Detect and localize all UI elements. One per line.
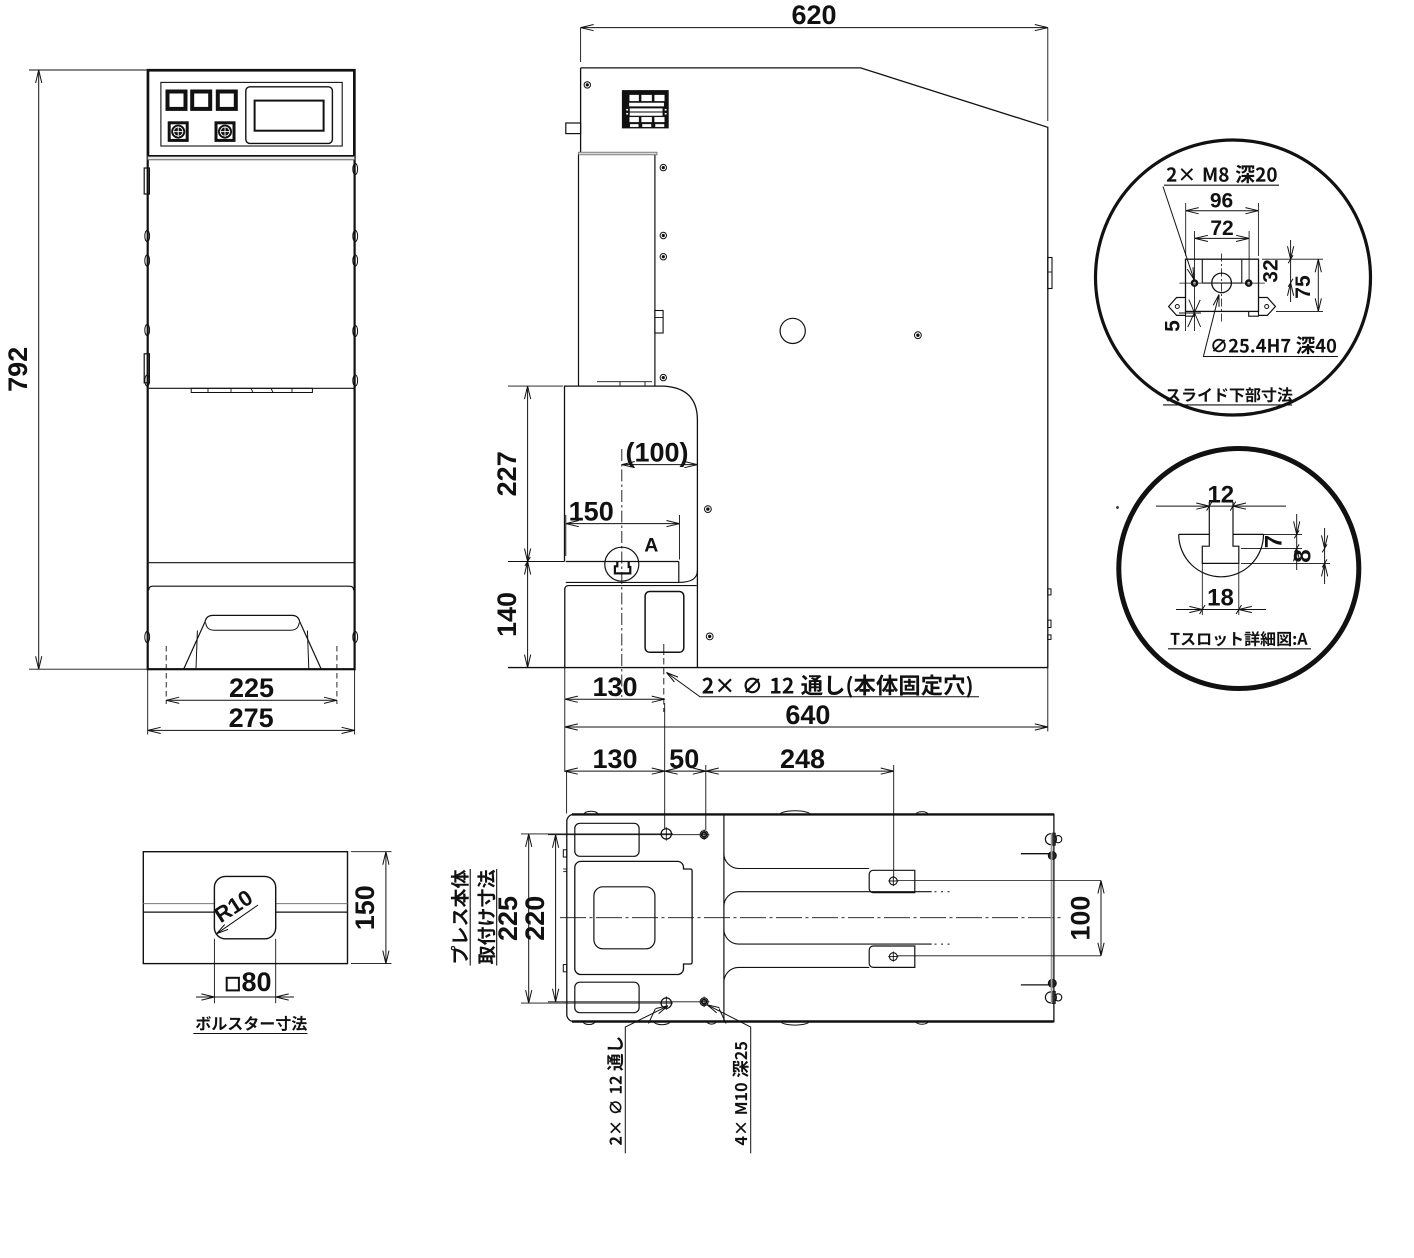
svg-text:96: 96 [1210,190,1233,213]
svg-text:80: 80 [241,967,271,997]
svg-text:150: 150 [350,885,380,930]
svg-text:72: 72 [1210,217,1233,240]
svg-text:140: 140 [492,592,522,637]
svg-text:620: 620 [791,0,836,30]
svg-text:18: 18 [1207,584,1234,611]
svg-text:75: 75 [1292,275,1315,299]
svg-text:100: 100 [1066,896,1096,941]
svg-text:640: 640 [785,700,830,730]
svg-text:(100): (100) [625,437,688,467]
svg-text:130: 130 [592,744,637,774]
svg-text:5: 5 [1162,320,1185,332]
svg-text:248: 248 [780,744,825,774]
svg-text:32: 32 [1260,259,1283,282]
svg-text:8: 8 [1290,549,1317,562]
svg-text:12: 12 [1207,481,1234,508]
svg-text:225: 225 [493,896,523,941]
svg-text:130: 130 [592,672,637,702]
svg-text:225: 225 [229,673,274,703]
svg-text:792: 792 [3,347,33,392]
svg-text:220: 220 [520,896,550,941]
svg-text:150: 150 [569,496,614,526]
svg-text:50: 50 [669,744,699,774]
svg-text:A: A [644,535,658,557]
svg-text:227: 227 [492,451,522,496]
svg-text:7: 7 [1261,535,1288,548]
svg-text:275: 275 [229,703,274,733]
